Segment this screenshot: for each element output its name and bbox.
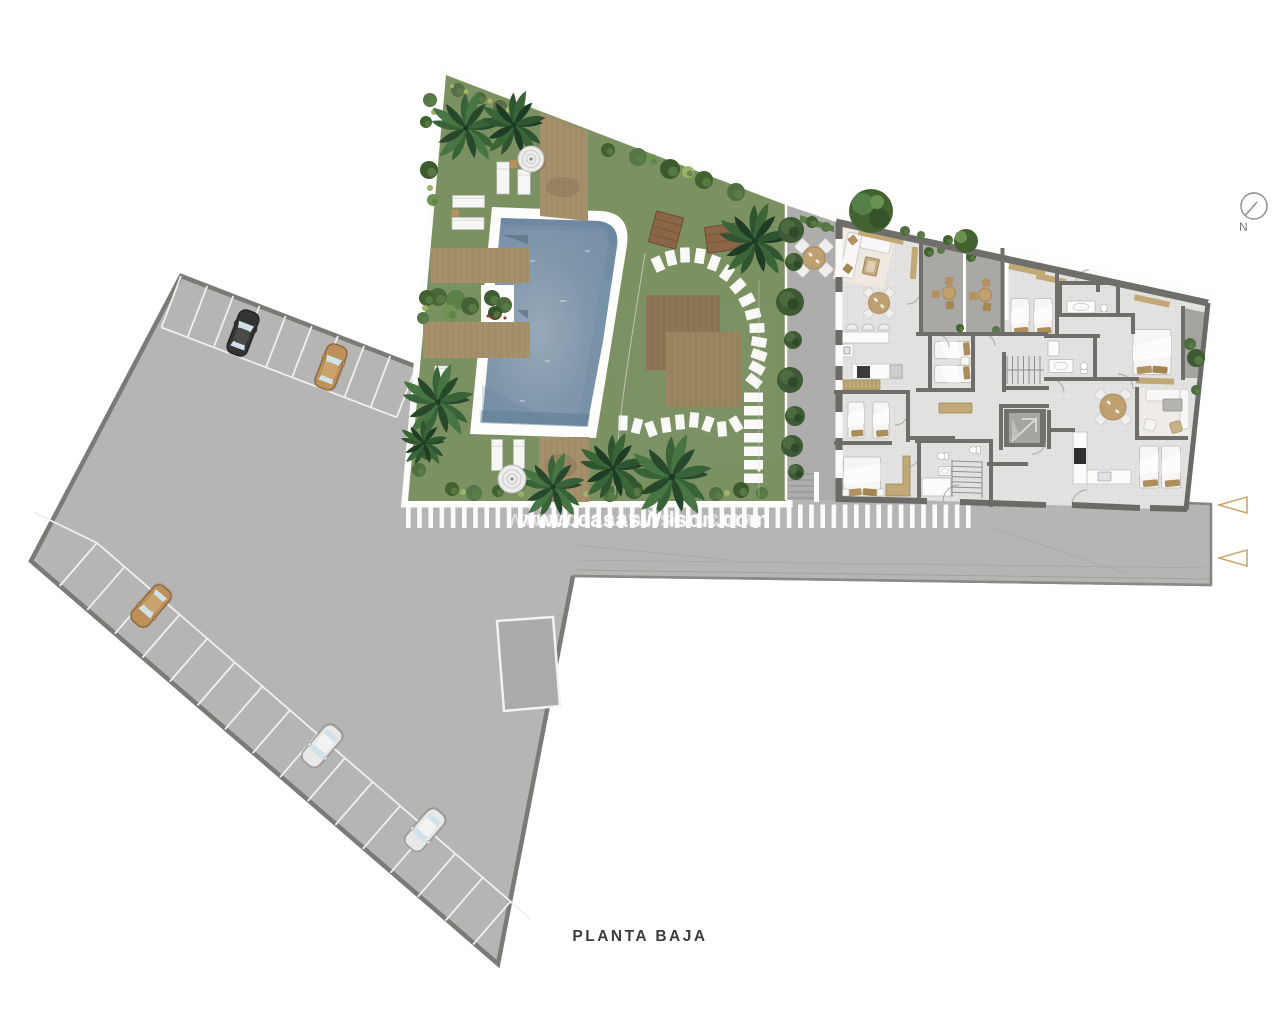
svg-text:www.casasWilson.com: www.casasWilson.com xyxy=(518,507,770,532)
svg-text:PLANTA BAJA: PLANTA BAJA xyxy=(572,928,707,945)
svg-text:N: N xyxy=(1239,220,1248,234)
